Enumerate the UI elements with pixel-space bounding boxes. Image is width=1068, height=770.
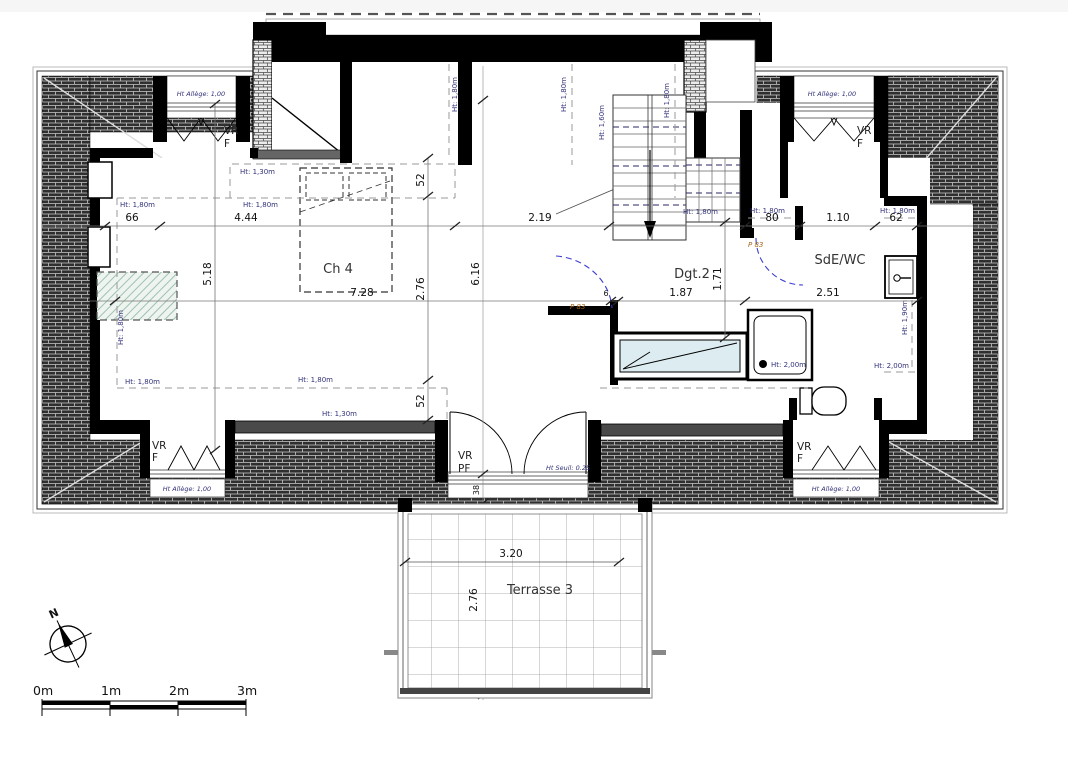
window-type-pf: PF bbox=[458, 463, 470, 475]
height-label: Ht: 1,80m bbox=[663, 83, 671, 118]
height-label: Ht: 1,80m bbox=[120, 201, 155, 209]
long-roof-window-right bbox=[601, 424, 783, 436]
dim-2-19: 2.19 bbox=[528, 212, 551, 224]
dim-1-10: 1.10 bbox=[826, 212, 849, 224]
height-label: Ht: 1,80m bbox=[683, 208, 718, 216]
dim-6-16: 6.16 bbox=[470, 262, 482, 286]
french-door-terrace: VR PF Ht Seuil: 0.25 bbox=[448, 412, 590, 498]
toilet-tank bbox=[800, 388, 812, 414]
velux-skylight bbox=[97, 272, 177, 320]
allege-label-top-left: Ht Allège: 1,00 bbox=[177, 90, 225, 98]
floor-plan-page: Ht Allège: 1,00 VR F Ht Allège: 1,00 VR … bbox=[0, 0, 1068, 770]
wall-duct-lower bbox=[88, 227, 110, 267]
dim-1-87: 1.87 bbox=[669, 287, 692, 299]
allege-label-bottom-right: Ht Allège: 1,00 bbox=[812, 485, 860, 493]
window-type-f: F bbox=[224, 138, 230, 150]
window-type-vr: VR bbox=[857, 125, 871, 137]
room-label-ch4: Ch 4 bbox=[323, 262, 353, 277]
chimney-right bbox=[684, 40, 706, 112]
window-type-f: F bbox=[857, 138, 863, 150]
bathtub bbox=[613, 333, 747, 379]
room-label-sdewc: SdE/WC bbox=[814, 253, 865, 268]
scale-3m: 3m bbox=[237, 683, 257, 698]
window-bottom-left: Ht Allège: 1,00 VR F bbox=[150, 420, 225, 497]
shower-height-label: Ht: 2,00m bbox=[771, 361, 806, 369]
window-type-vr: VR bbox=[152, 440, 166, 452]
dim-38: 38 bbox=[472, 485, 481, 495]
terrace: 3.20 2.76 Terrasse 3 bbox=[384, 498, 666, 698]
dim-62: 62 bbox=[889, 212, 902, 224]
height-label: Ht: 2,00m bbox=[874, 362, 909, 370]
window-type-f: F bbox=[152, 452, 158, 464]
washbasin bbox=[885, 256, 917, 298]
wall-duct-upper bbox=[88, 162, 112, 198]
window-type-vr: VR bbox=[797, 441, 811, 453]
height-label: Ht: 1,80m bbox=[298, 376, 333, 384]
room-label-dgt2: Dgt.2 bbox=[674, 267, 710, 282]
door-ref-label: P 83 bbox=[570, 303, 585, 311]
dim-2-76: 2.76 bbox=[415, 277, 427, 301]
height-label: Ht: 1,80m bbox=[243, 201, 278, 209]
shower-tray: Ht: 2,00m bbox=[748, 310, 812, 380]
height-label: Ht: 1,80m bbox=[117, 310, 125, 345]
terrace-scupper-right bbox=[652, 650, 666, 655]
dim-52-bottom: 52 bbox=[415, 394, 427, 407]
height-label: Ht: 1,30m bbox=[322, 410, 357, 418]
dim-66: 66 bbox=[125, 212, 139, 224]
dim-5-18: 5.18 bbox=[202, 262, 214, 285]
toilet bbox=[800, 387, 846, 415]
terrace-tiles bbox=[408, 514, 642, 688]
window-type-vr: VR bbox=[224, 125, 238, 137]
dim-6: 6 bbox=[603, 289, 608, 298]
allege-label-bottom-left: Ht Allège: 1,00 bbox=[163, 485, 211, 493]
height-label: Ht: 1,90m bbox=[901, 300, 909, 335]
scale-1m: 1m bbox=[101, 683, 121, 698]
dim-2-51: 2.51 bbox=[816, 287, 839, 299]
seuil-label: Ht Seuil: 0.25 bbox=[546, 464, 590, 472]
height-label: Ht: 1,80m bbox=[560, 77, 568, 112]
floor-plan-drawing: Ht Allège: 1,00 VR F Ht Allège: 1,00 VR … bbox=[0, 0, 1068, 770]
window-type-f: F bbox=[797, 453, 803, 465]
window-type-vr: VR bbox=[458, 450, 472, 462]
height-label: Ht: 1,80m bbox=[451, 77, 459, 112]
long-roof-window-left bbox=[235, 421, 435, 433]
allege-label-top-right: Ht Allège: 1,00 bbox=[808, 90, 856, 98]
scale-2m: 2m bbox=[169, 683, 189, 698]
room-label-terrasse: Terrasse 3 bbox=[506, 583, 573, 598]
dim-7-28: 7.28 bbox=[350, 287, 373, 299]
height-label: Ht: 1,30m bbox=[240, 168, 275, 176]
dim-1-71: 1.71 bbox=[712, 267, 724, 290]
viewer-top-strip bbox=[0, 0, 1068, 12]
dim-52-top: 52 bbox=[415, 173, 427, 186]
shower-drain bbox=[759, 360, 767, 368]
scale-0m: 0m bbox=[33, 683, 53, 698]
dim-terrace-depth: 2.76 bbox=[468, 588, 480, 612]
terrace-scupper-left bbox=[384, 650, 398, 655]
height-label: Ht: 1,80m bbox=[125, 378, 160, 386]
dim-4-44: 4.44 bbox=[234, 212, 258, 224]
window-bottom-right: Ht Allège: 1,00 VR F bbox=[793, 420, 879, 497]
dim-80: 80 bbox=[765, 212, 778, 224]
height-label: Ht: 1,60m bbox=[598, 105, 606, 140]
dim-terrace-width: 3.20 bbox=[499, 548, 522, 560]
chimney-left bbox=[253, 40, 272, 158]
toilet-bowl bbox=[812, 387, 846, 415]
door-ref-label: P 83 bbox=[748, 241, 763, 249]
